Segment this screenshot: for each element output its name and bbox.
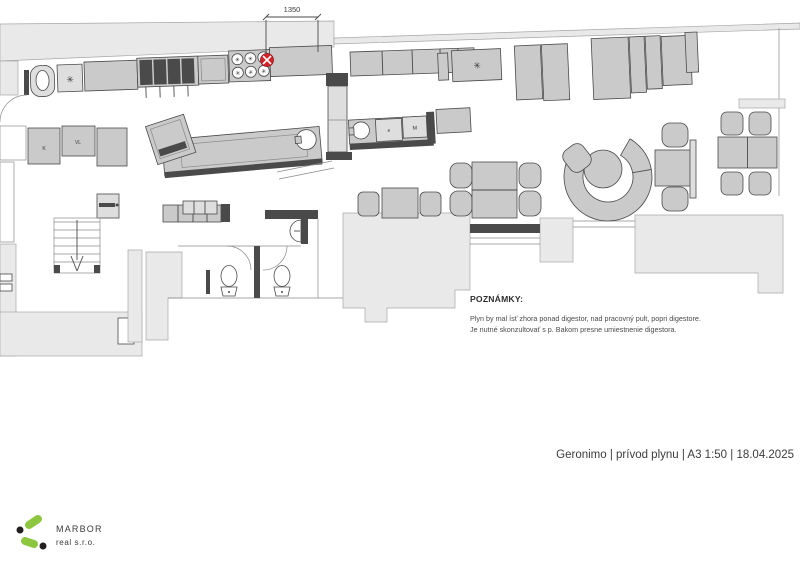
- notes-heading: POZNÁMKY:: [470, 294, 730, 304]
- toilet: [274, 266, 290, 297]
- small-appliance: [97, 194, 119, 218]
- building-mass-right: [635, 215, 783, 293]
- dimension-label: 1350: [284, 5, 301, 14]
- appliance-star-icon: ✳: [66, 74, 74, 84]
- unit-label-e: e: [387, 128, 390, 134]
- toilet: [221, 266, 237, 297]
- island-counter: [145, 103, 323, 180]
- burner-star-icon: ✳: [261, 68, 266, 75]
- burner-star-icon: ✳: [248, 69, 253, 76]
- kitchen-counter: [84, 60, 138, 91]
- burner-star-icon: ✳: [235, 70, 240, 77]
- dining-table-two: [358, 188, 441, 218]
- round-booth: [560, 139, 652, 221]
- burner-star-icon: ✳: [248, 56, 253, 63]
- pass-counter: [270, 45, 333, 76]
- burner-star-icon: ✳: [235, 57, 240, 64]
- floor-plan-drawing: ✳ ✳ ✳ ✳ ✳ ✳ ✳: [0, 0, 800, 568]
- title-block: Geronimo | prívod plynu | A3 1:50 | 18.0…: [556, 449, 794, 461]
- bar-column: [326, 73, 352, 160]
- building-mass-center: [343, 213, 470, 322]
- logo-name: MARBOR: [56, 524, 103, 534]
- logo-subtitle: real s.r.o.: [56, 538, 96, 547]
- banquette-group: ✳: [437, 32, 700, 106]
- wall-shelf: [739, 99, 785, 108]
- wc-sink: [290, 219, 308, 244]
- logo-mark-icon: [17, 519, 47, 550]
- dining-table-corner: [718, 99, 785, 195]
- banquette-star-icon: ✳: [473, 60, 481, 70]
- bar-counter: e M: [348, 108, 472, 150]
- fryer-block: [137, 56, 199, 98]
- dining-table-four: [450, 162, 541, 218]
- notes-line: Plyn by mal ísť zhora ponad digestor, na…: [470, 314, 730, 325]
- room-label-vl: VL: [75, 140, 81, 146]
- unit-label-m: M: [412, 125, 417, 131]
- bar-sink: [352, 121, 370, 139]
- oven-unit: [198, 55, 229, 84]
- gas-point-marker: [261, 54, 274, 67]
- entrance-wall: [470, 224, 540, 233]
- drawing-sheet: ✳ ✳ ✳ ✳ ✳ ✳ ✳: [0, 0, 800, 568]
- notes-line: Je nutné skonzultovať s p. Bakom presne …: [470, 325, 730, 336]
- notes-block: POZNÁMKY: Plyn by mal ísť zhora ponad di…: [470, 294, 730, 335]
- radiator: [690, 140, 696, 198]
- staircase: [54, 218, 100, 273]
- company-logo: MARBOR real s.r.o.: [12, 512, 182, 558]
- dining-table-window: [655, 123, 691, 211]
